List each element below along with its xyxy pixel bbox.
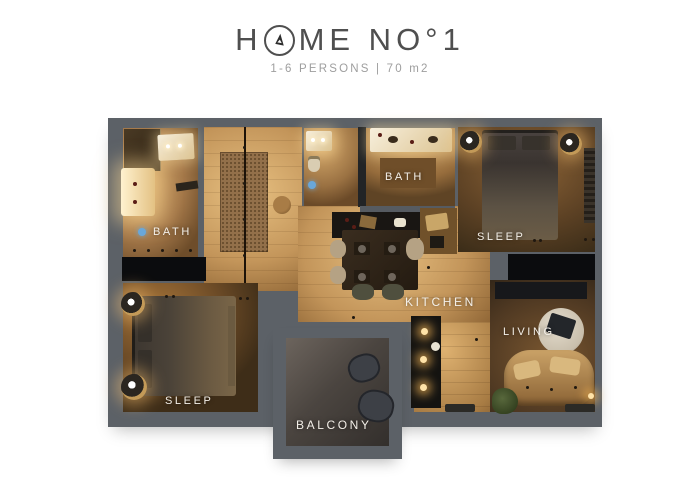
wc-sink xyxy=(306,131,332,151)
kitchen-cabinets xyxy=(411,316,441,408)
title-prefix: H xyxy=(235,22,262,58)
room-label-bath-top: BATH xyxy=(385,171,424,183)
dining-chair xyxy=(330,240,346,258)
tv-console xyxy=(495,282,587,299)
bedside-lamp xyxy=(560,133,582,155)
track-dot xyxy=(243,218,246,221)
dining-table xyxy=(342,230,418,290)
floor-lamp-glow xyxy=(588,393,594,399)
room-label-sleep-second: SLEEP xyxy=(165,395,213,407)
shower-icon xyxy=(308,181,316,189)
double-vanity xyxy=(370,128,452,152)
wall-divider xyxy=(358,127,366,207)
bathroom-sink xyxy=(157,133,194,161)
window-niche xyxy=(508,254,595,280)
dining-chair xyxy=(330,266,346,284)
toilet xyxy=(308,156,320,172)
header: H ME NO°1 1-6 PERSONS | 70 m2 xyxy=(0,22,700,75)
round-stool xyxy=(273,196,291,214)
bathtub xyxy=(121,168,155,216)
doormat xyxy=(445,404,475,412)
title-suffix: ME NO°1 xyxy=(299,22,465,58)
room-label-sleep-main: SLEEP xyxy=(477,231,525,243)
pine-tree-icon xyxy=(264,25,295,56)
dining-chair xyxy=(352,284,374,300)
bed-main xyxy=(482,130,558,240)
counter-side xyxy=(420,208,457,254)
page-title: H ME NO°1 xyxy=(0,22,700,58)
balcony-chair xyxy=(344,350,383,387)
storage-niche xyxy=(122,257,206,281)
doormat xyxy=(565,404,595,412)
plant xyxy=(492,388,518,414)
track-dot xyxy=(243,254,246,257)
room-label-kitchen: KITCHEN xyxy=(405,295,476,309)
wardrobe xyxy=(584,148,595,223)
dining-chair xyxy=(406,238,424,260)
shower-area xyxy=(124,129,161,171)
sliding-door-track xyxy=(244,127,246,283)
balcony-floor: BALCONY xyxy=(286,338,389,446)
dining-chair xyxy=(382,284,404,300)
bedside-lamp xyxy=(121,292,145,316)
bed-second xyxy=(132,296,236,396)
bedside-lamp xyxy=(121,374,147,400)
room-label-bath-left: BATH xyxy=(138,226,192,238)
track-dot xyxy=(243,146,246,149)
shower-icon xyxy=(138,228,146,236)
room-label-balcony: BALCONY xyxy=(296,418,372,432)
room-balcony: BALCONY xyxy=(273,328,402,459)
subtitle: 1-6 PERSONS | 70 m2 xyxy=(0,63,700,75)
room-label-living: LIVING xyxy=(503,326,555,338)
bedside-lamp xyxy=(460,131,482,153)
floorplan-canvas: H ME NO°1 1-6 PERSONS | 70 m2 xyxy=(0,0,700,500)
track-dot xyxy=(243,182,246,185)
